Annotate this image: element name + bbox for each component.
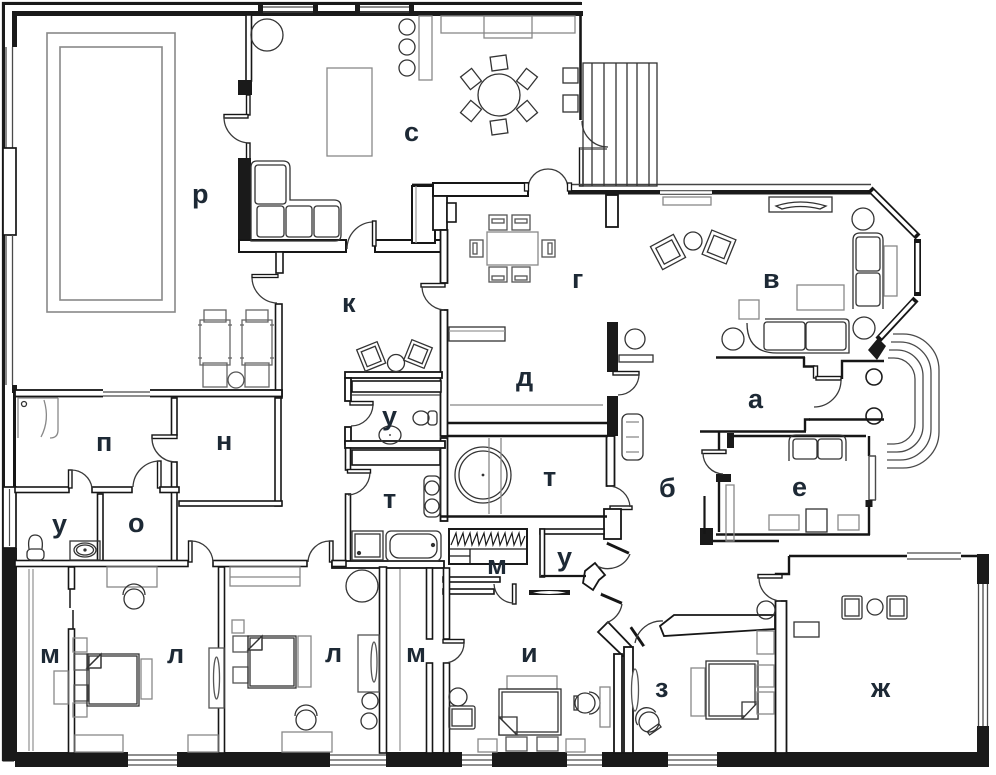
svg-text:б: б — [659, 473, 676, 503]
svg-text:у: у — [52, 509, 67, 539]
svg-text:л: л — [167, 639, 184, 669]
svg-text:и: и — [521, 638, 538, 668]
svg-text:е: е — [792, 472, 807, 502]
svg-text:м: м — [487, 550, 507, 580]
svg-text:л: л — [325, 638, 342, 668]
svg-text:о: о — [128, 508, 145, 538]
svg-text:к: к — [342, 288, 356, 318]
svg-text:с: с — [404, 117, 419, 147]
svg-text:п: п — [96, 427, 112, 457]
svg-text:м: м — [406, 638, 426, 668]
svg-text:у: у — [382, 401, 397, 431]
svg-text:в: в — [763, 264, 780, 294]
svg-text:з: з — [655, 673, 668, 703]
svg-text:у: у — [557, 542, 572, 572]
svg-text:а: а — [748, 384, 764, 414]
svg-text:н: н — [216, 426, 232, 456]
svg-text:м: м — [40, 639, 60, 669]
svg-text:т: т — [383, 484, 396, 514]
svg-text:ж: ж — [870, 673, 891, 703]
svg-text:г: г — [572, 264, 583, 294]
svg-text:д: д — [516, 362, 533, 392]
svg-text:т: т — [543, 462, 556, 492]
svg-text:р: р — [192, 179, 209, 209]
